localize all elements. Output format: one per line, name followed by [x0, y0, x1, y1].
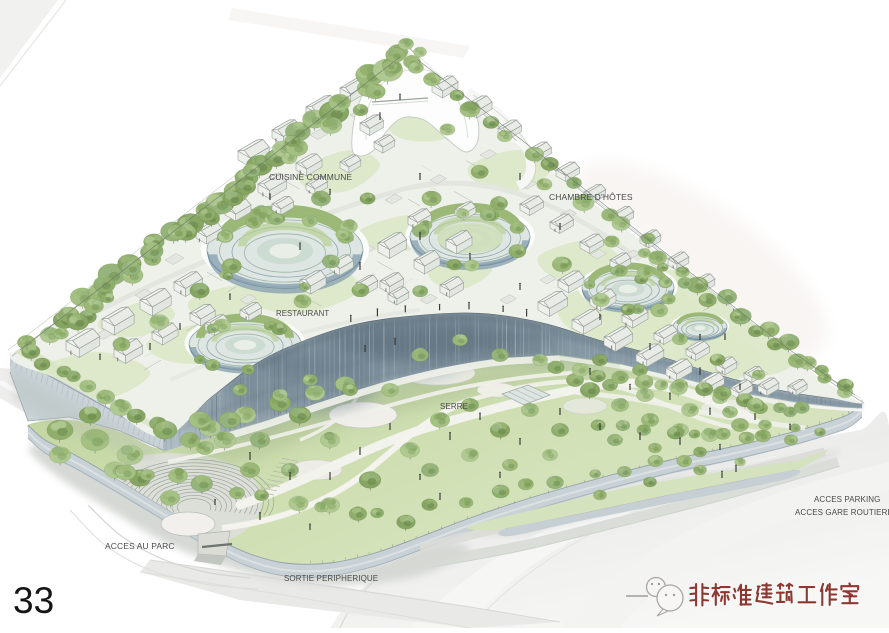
svg-text:SERRE: SERRE — [440, 402, 468, 411]
svg-text:ACCES GARE ROUTIERE: ACCES GARE ROUTIERE — [795, 508, 889, 517]
svg-text:CUISINE COMMUNE: CUISINE COMMUNE — [269, 172, 352, 182]
svg-text:RESTAURANT: RESTAURANT — [276, 309, 329, 318]
svg-text:ACCES AU PARC: ACCES AU PARC — [105, 541, 175, 551]
svg-text:33: 33 — [13, 580, 54, 621]
svg-text:SORTIE PERIPHERIQUE: SORTIE PERIPHERIQUE — [284, 574, 378, 583]
svg-text:ACCES PARKING: ACCES PARKING — [814, 495, 881, 504]
svg-text:CHAMBRE D’HÔTES: CHAMBRE D’HÔTES — [549, 192, 633, 202]
